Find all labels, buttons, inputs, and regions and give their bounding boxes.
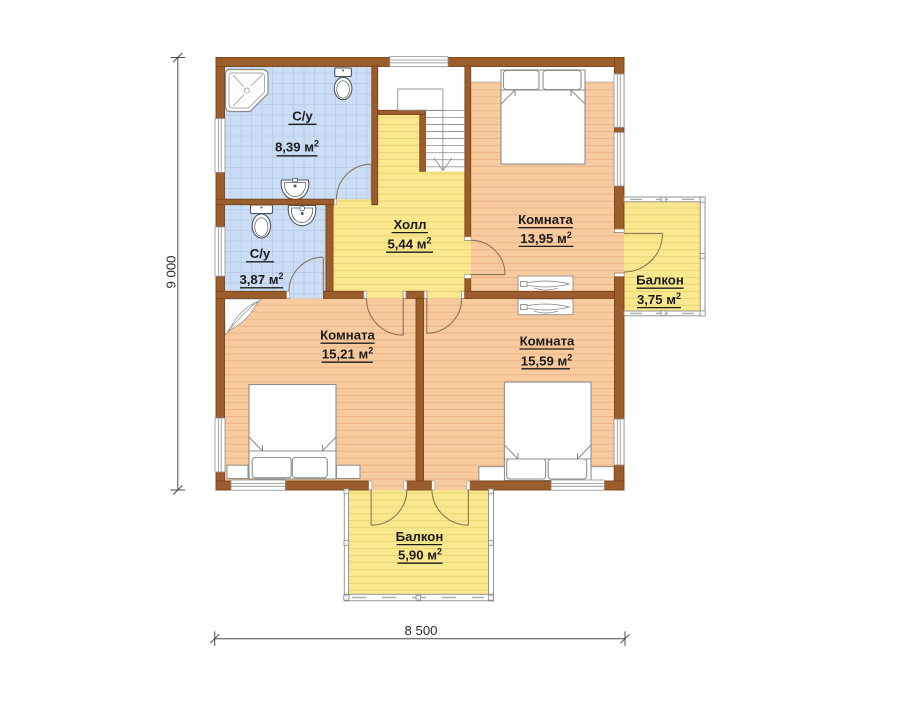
svg-text:8 500: 8 500 [404,623,437,638]
svg-text:15,21 м2: 15,21 м2 [322,346,373,362]
svg-text:8,39 м2: 8,39 м2 [275,139,319,155]
svg-text:3,75 м2: 3,75 м2 [637,291,681,307]
svg-text:Холл: Холл [393,217,426,232]
svg-text:5,90 м2: 5,90 м2 [398,547,442,563]
svg-text:3,87 м2: 3,87 м2 [239,271,283,287]
svg-text:Балкон: Балкон [396,529,444,544]
svg-text:Комната: Комната [320,328,375,343]
svg-text:13,95 м2: 13,95 м2 [520,230,571,246]
svg-text:С/у: С/у [250,246,271,261]
svg-text:9 000: 9 000 [164,255,179,288]
svg-text:Комната: Комната [520,334,575,349]
svg-text:Балкон: Балкон [636,273,684,288]
svg-text:5,44 м2: 5,44 м2 [387,236,431,252]
svg-text:Комната: Комната [518,212,573,227]
svg-text:С/у: С/у [292,109,313,124]
svg-text:15,59 м2: 15,59 м2 [521,352,572,368]
